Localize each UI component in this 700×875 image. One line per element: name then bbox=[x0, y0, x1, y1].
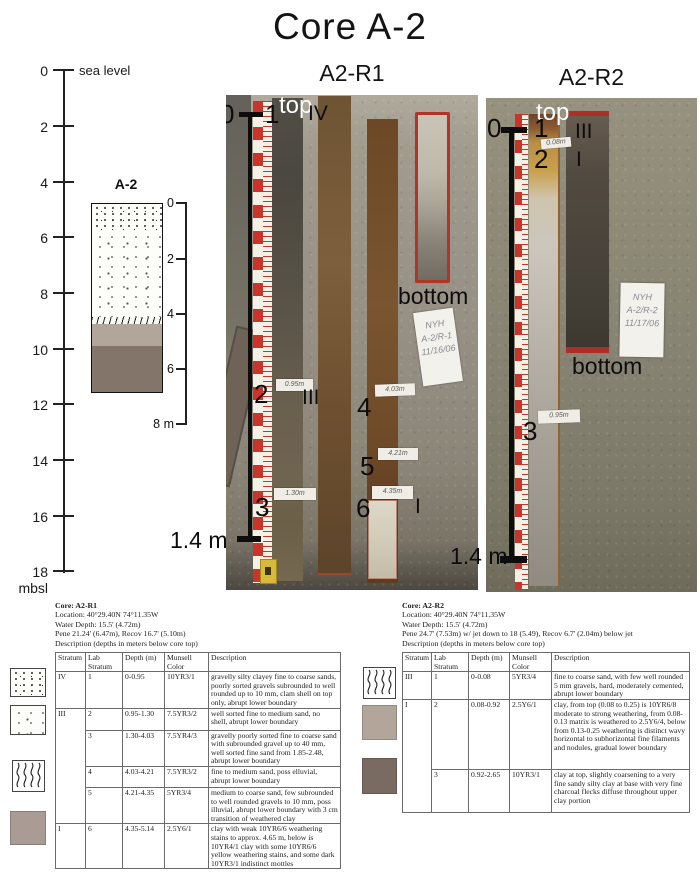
core-name: Core: A2-R1 bbox=[55, 601, 347, 610]
depth-tag: 4.03m bbox=[375, 383, 415, 396]
stratum-iii-label: III bbox=[575, 120, 593, 144]
cell-munsell: 7.5YR3/2 bbox=[165, 766, 209, 787]
ruler-tick-band bbox=[522, 114, 528, 590]
description-note: Description (depths in meters below core… bbox=[402, 639, 694, 648]
cell-desc: clay, from top (0.08 to 0.25) is 10YR6/8… bbox=[552, 700, 690, 770]
stratum-table: Stratum Lab Stratum Depth (m) Munsell Co… bbox=[402, 652, 690, 813]
layer-sand bbox=[92, 230, 162, 318]
core-id-paper: NYH A-2/R-2 11/17/06 bbox=[619, 283, 664, 358]
cell-depth: 0.08-0.92 bbox=[469, 700, 510, 770]
core-strip-2 bbox=[318, 96, 351, 575]
measure-line-bottom-bar bbox=[237, 536, 261, 542]
col-header-stratum: Stratum bbox=[403, 653, 432, 672]
tick-label: 6 bbox=[0, 230, 48, 246]
survey-ruler bbox=[515, 114, 528, 590]
photo-a2-r1: 0 1 top IV bottom NYH A-2/R-1 11/16/06 2… bbox=[226, 95, 478, 590]
column-tick bbox=[176, 423, 186, 425]
measure-line-top-bar bbox=[501, 127, 527, 133]
paper-line: A-2/R-2 bbox=[620, 304, 664, 318]
cell-stratum: I bbox=[56, 824, 86, 869]
marker-2: 2 bbox=[254, 379, 268, 410]
legend-swatch-weathered-clay bbox=[12, 760, 45, 792]
major-tick bbox=[53, 515, 74, 517]
squiggle-pattern-icon bbox=[13, 761, 44, 791]
marker-3: 3 bbox=[523, 416, 537, 447]
cell-depth: 4.35-5.14 bbox=[123, 824, 165, 869]
bottom-label: bottom bbox=[398, 283, 468, 310]
legend-swatch-sand bbox=[10, 705, 46, 735]
tick-label: 18 mbsl bbox=[0, 564, 48, 596]
depth-tag: 1.30m bbox=[274, 488, 316, 500]
ruler-red-band bbox=[515, 114, 522, 590]
cell-stratum: I bbox=[403, 700, 432, 813]
core-a2-figure: Core A-2 0 2 4 6 8 10 12 14 16 18 mbsl s… bbox=[0, 0, 700, 875]
table-info: Core: A2-R2 Location: 40°29.40N 74°11.35… bbox=[402, 601, 694, 648]
stratum-iv-label: IV bbox=[308, 102, 328, 126]
cell-stratum: III bbox=[403, 672, 432, 700]
cell-desc: fine to coarse sand, with few well round… bbox=[552, 672, 690, 700]
core-table-a2-r2: Core: A2-R2 Location: 40°29.40N 74°11.35… bbox=[402, 601, 694, 813]
tick-label: 12 bbox=[0, 397, 48, 413]
major-tick bbox=[53, 348, 74, 350]
major-tick bbox=[53, 236, 74, 238]
core-table-a2-r1: Core: A2-R1 Location: 40°29.40N 74°11.35… bbox=[55, 601, 347, 869]
cell-munsell: 10YR3/1 bbox=[165, 672, 209, 708]
cell-lab: 2 bbox=[432, 700, 469, 770]
water-depth-line: Water Depth: 15.5' (4.72m) bbox=[402, 620, 694, 629]
tick-label: 10 bbox=[0, 342, 48, 358]
penetration-line: Pene 21.24' (6.47m), Recov 16.7' (5.10m) bbox=[55, 629, 347, 638]
col-header-lab: Lab Stratum bbox=[432, 653, 469, 672]
scale-zero-label: 0 bbox=[487, 113, 501, 144]
core-tray-4 bbox=[415, 112, 450, 283]
column-tick-label: 0 bbox=[140, 196, 174, 210]
col-header-desc: Description bbox=[209, 653, 341, 672]
cell-munsell: 10YR3/1 bbox=[510, 770, 552, 813]
sea-level-label: sea level bbox=[79, 63, 130, 78]
depth-scale-axis bbox=[63, 70, 65, 573]
column-tick-label: 8 m bbox=[140, 417, 174, 431]
cell-desc: medium to coarse sand, few subrounded to… bbox=[209, 787, 341, 823]
legend-swatch-dark-clay bbox=[362, 758, 397, 794]
column-tick bbox=[176, 313, 186, 315]
cell-munsell: 5YR3/4 bbox=[165, 787, 209, 823]
marker-1: 1 bbox=[265, 99, 279, 130]
cell-depth: 0-0.95 bbox=[123, 672, 165, 708]
cell-lab: 2 bbox=[86, 708, 123, 730]
cell-depth: 4.21-4.35 bbox=[123, 787, 165, 823]
stratum-iii-label: III bbox=[302, 386, 320, 410]
cell-munsell: 7.5YR4/3 bbox=[165, 730, 209, 766]
depth-tag: 4.35m bbox=[372, 486, 413, 499]
photo-r2-title: A2-R2 bbox=[486, 64, 697, 91]
tick-label: 2 bbox=[0, 119, 48, 135]
penetration-line: Pene 24.7' (7.53m) w/ jet down to 18 (5.… bbox=[402, 629, 694, 638]
cell-lab: 4 bbox=[86, 766, 123, 787]
marker-4: 4 bbox=[357, 392, 371, 423]
measure-line-top-bar bbox=[239, 112, 263, 117]
cell-stratum: IV bbox=[56, 672, 86, 708]
cell-depth: 1.30-4.03 bbox=[123, 730, 165, 766]
measure-line bbox=[509, 128, 514, 560]
cell-desc: clay at top, slightly coarsening to a ve… bbox=[552, 770, 690, 813]
col-header-lab: Lab Stratum bbox=[86, 653, 123, 672]
squiggle-pattern-icon bbox=[364, 668, 395, 698]
col-header-depth: Depth (m) bbox=[469, 653, 510, 672]
cell-depth: 0.92-2.65 bbox=[469, 770, 510, 813]
photo-r1-title: A2-R1 bbox=[226, 60, 478, 87]
col-header-stratum: Stratum bbox=[56, 653, 86, 672]
column-tick-label: 4 bbox=[140, 307, 174, 321]
col-header-desc: Description bbox=[552, 653, 690, 672]
photo-a2-r2: top 0 1 III 0.08m 2 I NYH A-2/R-2 11/17/… bbox=[486, 98, 697, 592]
cell-depth: 4.03-4.21 bbox=[123, 766, 165, 787]
col-header-munsell: Munsell Color bbox=[165, 653, 209, 672]
layer-light-clay bbox=[92, 324, 162, 347]
clay-segment bbox=[368, 500, 397, 579]
major-tick bbox=[53, 181, 74, 183]
column-tick bbox=[176, 368, 186, 370]
core-tray-2 bbox=[566, 111, 609, 353]
core-name: Core: A2-R2 bbox=[402, 601, 694, 610]
cell-munsell: 7.5YR3/2 bbox=[165, 708, 209, 730]
cell-lab: 1 bbox=[432, 672, 469, 700]
column-tick bbox=[176, 258, 186, 260]
col-header-munsell: Munsell Color bbox=[510, 653, 552, 672]
legend-swatch-light-clay bbox=[362, 705, 397, 740]
core-strip-3 bbox=[367, 119, 398, 583]
cell-desc: clay with weak 10YR6/6 weathering stains… bbox=[209, 824, 341, 869]
r1-length-label: 1.4 m bbox=[170, 527, 228, 554]
cell-lab: 3 bbox=[432, 770, 469, 813]
major-tick bbox=[53, 459, 74, 461]
col-header-depth: Depth (m) bbox=[123, 653, 165, 672]
major-tick bbox=[53, 69, 74, 71]
table-info: Core: A2-R1 Location: 40°29.40N 74°11.35… bbox=[55, 601, 347, 648]
tick-label: 14 bbox=[0, 453, 48, 469]
tape-measure-end bbox=[260, 559, 277, 584]
paper-line: NYH bbox=[620, 291, 664, 305]
major-tick bbox=[53, 292, 74, 294]
bottom-label: bottom bbox=[572, 353, 642, 380]
cell-lab: 5 bbox=[86, 787, 123, 823]
scale-zero-label: 0 bbox=[226, 99, 234, 130]
cell-stratum: III bbox=[56, 708, 86, 824]
cell-depth: 0-0.08 bbox=[469, 672, 510, 700]
cell-lab: 3 bbox=[86, 730, 123, 766]
location-line: Location: 40°29.40N 74°11.35W bbox=[55, 610, 347, 619]
cell-munsell: 2.5Y6/1 bbox=[510, 700, 552, 770]
major-tick bbox=[53, 125, 74, 127]
tick-label: 0 bbox=[0, 63, 48, 79]
marker-6: 6 bbox=[356, 493, 370, 524]
strat-column-title: A-2 bbox=[91, 176, 161, 192]
legend-swatch-gray-clay bbox=[10, 811, 46, 845]
major-tick bbox=[53, 570, 74, 572]
cell-desc: gravelly silty clayey fine to coarse san… bbox=[209, 672, 341, 708]
cell-desc: gravelly poorly sorted fine to coarse sa… bbox=[209, 730, 341, 766]
cell-depth: 0.95-1.30 bbox=[123, 708, 165, 730]
legend-swatch-weathered-clay bbox=[363, 667, 396, 699]
column-tick-label: 2 bbox=[140, 252, 174, 266]
column-tick-label: 6 bbox=[140, 362, 174, 376]
cell-lab: 1 bbox=[86, 672, 123, 708]
water-depth-line: Water Depth: 15.5' (4.72m) bbox=[55, 620, 347, 629]
measure-line bbox=[248, 113, 252, 541]
depth-tag: 0.95m bbox=[538, 409, 580, 423]
marker-3: 3 bbox=[255, 492, 269, 523]
stratum-table: Stratum Lab Stratum Depth (m) Munsell Co… bbox=[55, 652, 341, 869]
cell-munsell: 2.5Y6/1 bbox=[165, 824, 209, 869]
marker-2: 2 bbox=[534, 144, 548, 175]
major-tick bbox=[53, 403, 74, 405]
tick-label: 16 bbox=[0, 509, 48, 525]
tick-label: 8 bbox=[0, 286, 48, 302]
core-strip-1 bbox=[272, 98, 303, 581]
cell-desc: fine to medium sand, poss elluvial, abru… bbox=[209, 766, 341, 787]
marker-5: 5 bbox=[360, 451, 374, 482]
legend-swatch-gravelly-sand bbox=[10, 668, 46, 697]
cell-munsell: 5YR3/4 bbox=[510, 672, 552, 700]
location-line: Location: 40°29.40N 74°11.35W bbox=[402, 610, 694, 619]
core-strip-1 bbox=[529, 114, 560, 586]
stratum-i-label: I bbox=[415, 495, 421, 519]
page-title: Core A-2 bbox=[0, 6, 700, 48]
cell-lab: 6 bbox=[86, 824, 123, 869]
tick-label: 4 bbox=[0, 175, 48, 191]
depth-tag: 4.21m bbox=[378, 448, 418, 460]
cell-desc: well sorted fine to medium sand, no shel… bbox=[209, 708, 341, 730]
description-note: Description (depths in meters below core… bbox=[55, 639, 347, 648]
column-tick bbox=[176, 202, 186, 204]
stratum-i-label: I bbox=[576, 148, 582, 172]
paper-line: 11/17/06 bbox=[620, 317, 664, 331]
r2-length-label: 1.4 m bbox=[450, 543, 508, 570]
